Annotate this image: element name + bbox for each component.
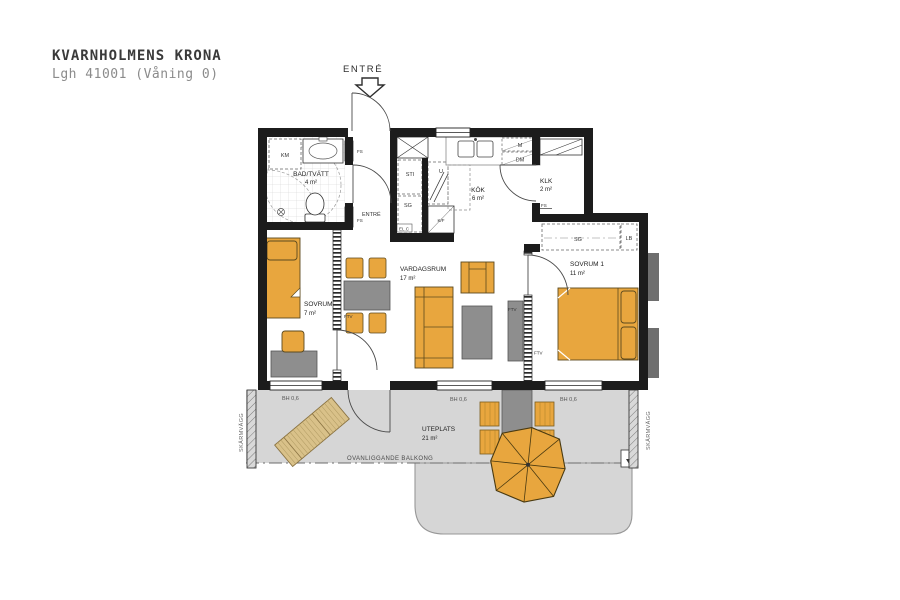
kitchen-name: KÖK	[471, 186, 485, 194]
window-bedroom1	[545, 381, 602, 390]
dining-chair	[369, 313, 386, 333]
floorplan-page: KVARNHOLMENS KRONA Lgh 41001 (Våning 0) …	[0, 0, 900, 600]
floor-drain-icon	[278, 209, 285, 216]
pillow	[267, 241, 297, 260]
single-bed	[264, 238, 300, 318]
patio-name: UTEPLATS	[422, 426, 456, 433]
desk	[271, 351, 317, 377]
sill-height-label-3: BH 0,6	[560, 397, 577, 403]
living-area: 17 m²	[400, 276, 415, 282]
sill-height-label-2: BH 0,6	[450, 397, 467, 403]
dining-chair	[369, 258, 386, 278]
lb-label: LB	[626, 236, 633, 242]
parasol	[491, 428, 565, 502]
floorplan-drawing: OVANLIGGANDE BALKONG UTEPLATS 21 m² BH 0…	[0, 0, 900, 600]
screen-wall-left	[247, 390, 256, 468]
dm-label: DM	[516, 158, 525, 164]
toilet	[305, 193, 325, 222]
sti-label: STI	[406, 172, 415, 178]
ftv-living-right-label: FTV	[508, 307, 517, 312]
bathroom-area: 4 m²	[305, 180, 317, 186]
sg-bedroom-label: SG	[574, 237, 582, 243]
plan-title: KVARNHOLMENS KRONA	[52, 48, 222, 64]
entrance-door	[352, 93, 390, 131]
plan-subtitle: Lgh 41001 (Våning 0)	[52, 67, 222, 82]
bedroom1-area: 11 m²	[570, 271, 585, 277]
bedroom1-name: SOVRUM 1	[570, 261, 604, 268]
balcony-above-label: OVANLIGGANDE BALKONG	[347, 456, 433, 462]
klk-area: 2 m²	[540, 187, 552, 193]
sill-height-label-1: BH 0,6	[282, 396, 299, 402]
bathroom-name: BAD/TVÄTT	[293, 170, 329, 178]
window-kitchen	[436, 128, 470, 137]
shaft-hatch	[397, 137, 428, 158]
kf-label: K/F	[437, 218, 444, 223]
pillow	[621, 327, 636, 359]
fs-klk-label: FS	[541, 203, 547, 208]
patio-area: 21 m²	[422, 436, 437, 442]
terrace: OVANLIGGANDE BALKONG UTEPLATS 21 m² BH 0…	[238, 390, 652, 534]
screen-wall-right	[629, 390, 638, 468]
desk-chair	[282, 331, 304, 352]
klk-name: KLK	[540, 178, 553, 185]
armchair	[461, 262, 494, 293]
sg-hall-label: SG	[404, 203, 412, 209]
living-name: VARDAGSRUM	[400, 266, 446, 273]
double-bed	[558, 288, 638, 360]
dining-chair	[346, 258, 363, 278]
dining-table	[344, 281, 390, 310]
fs-top-label: FS	[357, 149, 363, 154]
hall-name: ENTRÉ	[362, 211, 381, 218]
pillow	[621, 291, 636, 323]
sofa	[415, 287, 453, 368]
m-label: M	[518, 143, 523, 149]
window-bedroom2	[270, 381, 322, 390]
coffee-table	[462, 306, 492, 359]
window-living	[437, 381, 492, 390]
washbasin	[303, 137, 343, 163]
title-block: KVARNHOLMENS KRONA Lgh 41001 (Våning 0)	[52, 48, 222, 82]
kitchen-area: 6 m²	[472, 196, 484, 202]
screen-wall-left-label: SKÄRMVÄGG	[238, 413, 245, 452]
screen-wall-right-label: SKÄRMVÄGG	[645, 411, 652, 450]
washing-machine-label: KM	[281, 153, 290, 159]
elc-label: EL.C	[399, 227, 410, 232]
ftv-bedroom1-label: FTV	[534, 351, 543, 356]
entrance-label: ENTRÉ	[343, 64, 383, 75]
u-label: U	[439, 169, 443, 175]
ftv-living-left-label: FTV	[344, 314, 353, 319]
bedroom2-area: 7 m²	[304, 311, 316, 317]
entrance-callout: ENTRÉ	[343, 64, 384, 97]
fs-bottom-label: FS	[357, 218, 363, 223]
klk-shaft-hatch	[540, 139, 582, 155]
